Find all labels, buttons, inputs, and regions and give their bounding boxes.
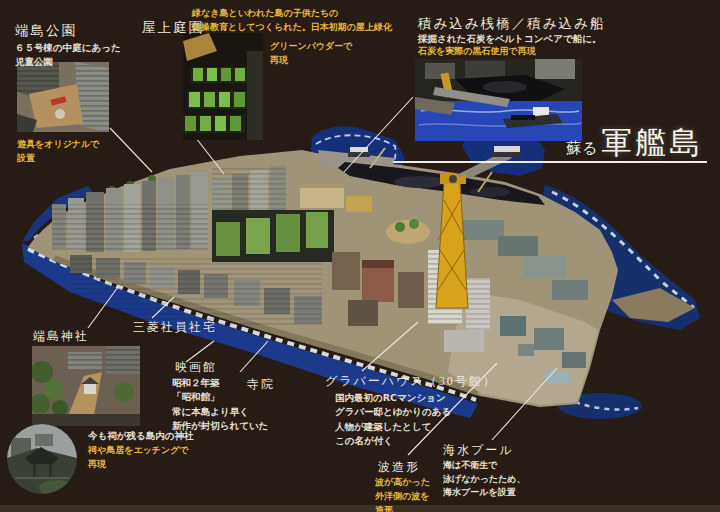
loading-pier-caption: 石炭を実際の黒石使用で再現: [418, 45, 536, 59]
hashima-shrine-caption: 祠や鳥居をエッチングで 再現: [88, 444, 189, 472]
hashima-shrine-photo: [32, 346, 140, 426]
rooftop-garden-blocks: [212, 210, 334, 262]
temple-title: 寺院: [247, 376, 275, 393]
poster-title: 蘇る 軍艦島: [566, 122, 703, 164]
hashima-shrine-detail-photo: [7, 424, 77, 494]
mitsubishi-housing-title: 三菱社員社宅: [133, 319, 217, 336]
hashima-park-title: 端島公園: [15, 22, 77, 40]
cinema-title: 映画館: [175, 359, 217, 376]
wave-forming-title: 波造形: [378, 459, 420, 476]
hashima-shrine-title: 端島神社: [33, 328, 89, 345]
glover-house-title: グラバーハウス（30号館）: [325, 373, 497, 390]
rooftop-garden-caption: グリーンパウダーで 再現: [270, 40, 352, 68]
seawater-pool-desc: 海は不衛生で 泳げなかったため、 海水プールを設置: [443, 459, 525, 500]
poster-title-prefix: 蘇る: [566, 139, 598, 158]
hashima-park-desc: ６５号棟の中庭にあった 児童公園: [15, 41, 121, 70]
wave-forming-desc: 波が高かった 外洋側の波を 造形: [375, 476, 430, 512]
glover-house-desc: 国内最初のRCマンション グラバー邸とゆかりのある 人物が建築したとして この名…: [335, 391, 451, 448]
hashima-park-photo: [17, 62, 109, 132]
poster-title-main: 軍艦島: [601, 122, 703, 164]
loading-pier-photo: [415, 59, 582, 141]
rooftop-garden-photo: [183, 33, 263, 140]
title-underline: [393, 161, 707, 163]
loading-pier-title: 積み込み桟橋／積み込み船: [418, 15, 605, 33]
hashima-park-caption: 遊具をオリジナルで 設置: [17, 138, 99, 166]
seawater-pool-title: 海水プール: [443, 442, 514, 459]
rooftop-garden-desc: 緑なき島といわれた島の子供たちの 情操教育としてつくられた。日本初期の屋上緑化: [192, 7, 392, 35]
gunkanjima-model-poster: 端島公園 ６５号棟の中庭にあった 児童公園 遊具をオリジナルで 設置 屋上庭園 …: [0, 0, 720, 512]
